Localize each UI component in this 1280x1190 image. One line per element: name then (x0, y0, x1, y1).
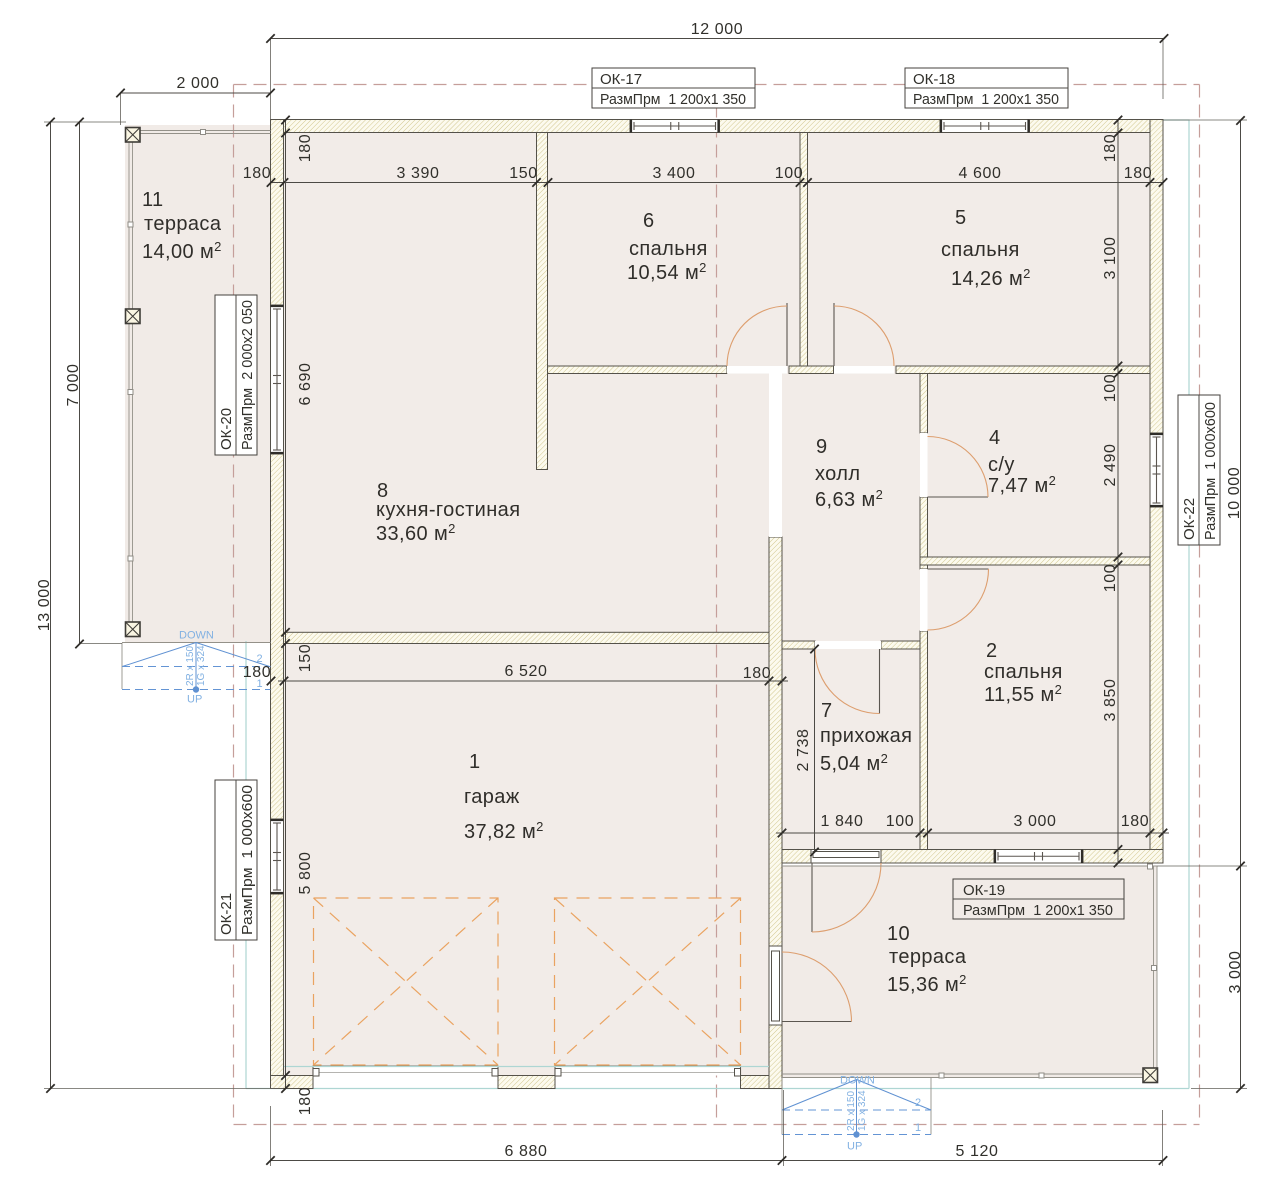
svg-text:180: 180 (1102, 134, 1119, 163)
svg-text:5: 5 (955, 207, 967, 229)
svg-text:10 000: 10 000 (1226, 467, 1243, 520)
svg-text:3 400: 3 400 (652, 165, 695, 182)
svg-text:3 000: 3 000 (1013, 813, 1056, 830)
svg-text:гараж: гараж (464, 786, 520, 808)
svg-text:кухня-гостиная: кухня-гостиная (376, 499, 520, 521)
svg-text:2 490: 2 490 (1102, 443, 1119, 486)
svg-text:100: 100 (775, 165, 804, 182)
svg-text:DOWN: DOWN (840, 1075, 875, 1087)
svg-text:спальня: спальня (941, 239, 1020, 261)
svg-text:2 000: 2 000 (176, 75, 219, 92)
svg-text:UP: UP (847, 1141, 862, 1153)
svg-text:прихожая: прихожая (820, 725, 912, 747)
svg-text:РазмПрм 1 200х1 350: РазмПрм 1 200х1 350 (963, 902, 1113, 919)
svg-text:2 738: 2 738 (795, 728, 812, 771)
svg-text:3 100: 3 100 (1102, 236, 1119, 279)
svg-text:180: 180 (243, 165, 272, 182)
svg-text:ОК-21: ОК-21 (218, 893, 235, 935)
svg-text:3 000: 3 000 (1227, 950, 1244, 993)
svg-text:11,55 м2: 11,55 м2 (984, 682, 1062, 706)
svg-text:5,04 м2: 5,04 м2 (820, 751, 888, 775)
svg-text:DOWN: DOWN (179, 630, 214, 642)
svg-text:1G x 324: 1G x 324 (857, 1090, 868, 1131)
svg-text:2R x 150: 2R x 150 (846, 1091, 857, 1131)
svg-text:33,60 м2: 33,60 м2 (376, 521, 456, 545)
svg-text:15,36 м2: 15,36 м2 (887, 972, 967, 996)
svg-text:спальня: спальня (984, 661, 1063, 683)
svg-text:100: 100 (1102, 564, 1119, 593)
svg-text:UP: UP (187, 694, 202, 706)
svg-text:180: 180 (1124, 165, 1153, 182)
svg-text:100: 100 (1102, 374, 1119, 403)
svg-text:6: 6 (643, 210, 655, 232)
svg-text:2: 2 (915, 1097, 921, 1109)
svg-text:РазмПрм 1 000х600: РазмПрм 1 000х600 (239, 785, 256, 935)
svg-text:14,00 м2: 14,00 м2 (142, 239, 222, 263)
svg-text:холл: холл (815, 463, 860, 485)
svg-text:7: 7 (821, 700, 833, 722)
svg-text:100: 100 (886, 813, 915, 830)
svg-text:180: 180 (297, 134, 314, 163)
svg-text:ОК-19: ОК-19 (963, 882, 1005, 899)
svg-text:7 000: 7 000 (65, 363, 82, 406)
svg-text:1 840: 1 840 (820, 813, 863, 830)
svg-text:10: 10 (887, 923, 910, 945)
svg-text:1: 1 (469, 751, 481, 773)
svg-text:спальня: спальня (629, 238, 708, 260)
svg-text:37,82 м2: 37,82 м2 (464, 819, 544, 843)
svg-text:4 600: 4 600 (958, 165, 1001, 182)
svg-text:РазмПрм 2 000х2 050: РазмПрм 2 000х2 050 (239, 300, 256, 450)
svg-text:3 390: 3 390 (396, 165, 439, 182)
svg-text:12 000: 12 000 (691, 21, 744, 38)
svg-text:9: 9 (816, 436, 828, 458)
svg-text:150: 150 (297, 644, 314, 673)
svg-text:14,26 м2: 14,26 м2 (951, 266, 1031, 290)
svg-text:1: 1 (915, 1122, 921, 1134)
svg-text:5 800: 5 800 (297, 851, 314, 894)
svg-text:10,54 м2: 10,54 м2 (627, 260, 707, 284)
svg-text:3 850: 3 850 (1102, 678, 1119, 721)
svg-text:180: 180 (743, 665, 772, 682)
svg-text:150: 150 (509, 165, 538, 182)
svg-text:ОК-22: ОК-22 (1181, 498, 1198, 540)
svg-text:1G x 324: 1G x 324 (196, 645, 207, 686)
svg-text:ОК-20: ОК-20 (218, 408, 235, 450)
svg-text:4: 4 (989, 427, 1001, 449)
svg-text:6 520: 6 520 (504, 663, 547, 680)
svg-text:2R x 150: 2R x 150 (185, 646, 196, 686)
svg-text:с/у: с/у (988, 454, 1015, 476)
svg-text:180: 180 (1121, 813, 1150, 830)
svg-text:РазмПрм 1 200х1 350: РазмПрм 1 200х1 350 (913, 91, 1059, 108)
svg-text:13 000: 13 000 (36, 579, 53, 632)
svg-text:180: 180 (297, 1087, 314, 1116)
svg-text:5 120: 5 120 (955, 1143, 998, 1160)
svg-text:6,63 м2: 6,63 м2 (815, 487, 883, 511)
svg-text:7,47 м2: 7,47 м2 (988, 473, 1056, 497)
svg-text:6 690: 6 690 (297, 362, 314, 405)
svg-text:6 880: 6 880 (504, 1143, 547, 1160)
svg-text:2: 2 (986, 640, 998, 662)
svg-text:терраса: терраса (889, 946, 967, 968)
svg-text:терраса: терраса (144, 213, 222, 235)
svg-text:ОК-18: ОК-18 (913, 71, 955, 88)
svg-text:РазмПрм 1 000х600: РазмПрм 1 000х600 (1202, 402, 1219, 540)
svg-text:11: 11 (142, 189, 164, 211)
svg-text:180: 180 (243, 664, 272, 681)
svg-text:РазмПрм 1 200х1 350: РазмПрм 1 200х1 350 (600, 91, 746, 108)
svg-text:ОК-17: ОК-17 (600, 71, 642, 88)
